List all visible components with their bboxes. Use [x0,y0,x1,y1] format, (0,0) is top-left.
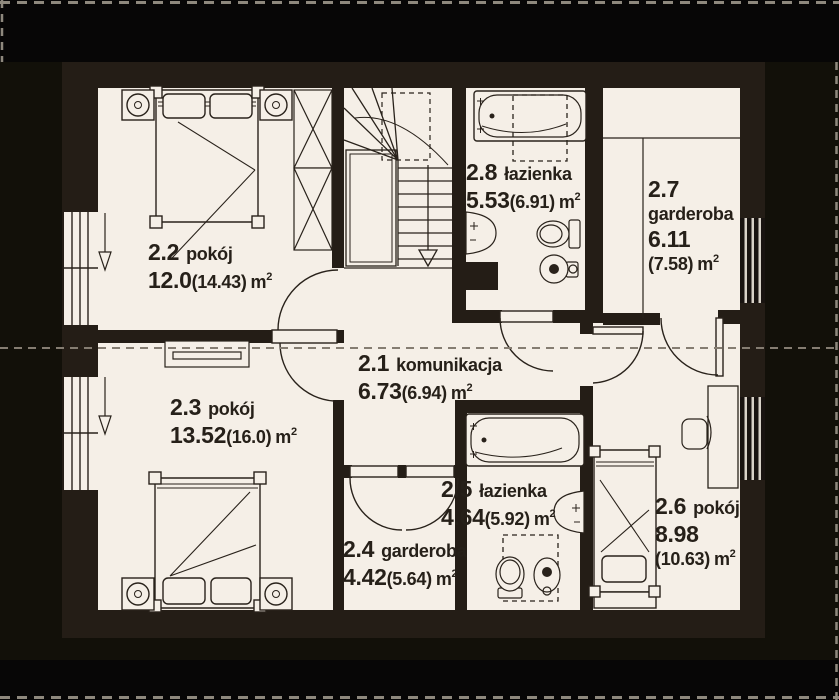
toilet-bath28 [537,220,580,248]
door-leaf-bath28 [500,311,553,322]
dresser-room23 [165,341,249,367]
toilet-bath25 [496,557,524,598]
room-label-2-3: 2.3pokój 13.52(16.0)m2 [170,395,297,451]
wall-door-post-b [398,465,406,478]
floorplan-drawing [0,0,839,700]
floorplan-page: 2.2pokój 12.0(14.43)m2 2.3pokój 13.52(16… [0,0,839,700]
wardrobe-room22 [294,90,332,250]
single-bed-room26 [589,446,660,608]
wall-exterior-top [62,62,765,88]
wall-room22-stairs [332,88,344,268]
window-left-upper [64,212,98,325]
window-right-garderoba [740,218,765,303]
room-label-2-8: 2.8łazienka 5.53(6.91)m2 [466,160,580,216]
window-right-room26 [740,397,765,480]
room-label-2-4: 2.4garderoba 4.42(5.64)m2 [343,537,466,593]
wall-room26-west-top [580,313,593,334]
room-label-2-5: 2.5łazienka 4.64(5.92)m2 [441,477,555,533]
wall-exterior-bottom [62,610,765,638]
door-leaf-room22 [272,330,337,343]
room-label-2-2: 2.2pokój 12.0(14.43)m2 [148,240,272,296]
bathtub-bath25 [466,414,584,466]
door-leaf-garderoba24 [350,466,398,477]
wall-duct-block [452,262,498,290]
room-label-2-6: 2.6pokój 8.98 (10.63)m2 [655,494,740,572]
double-bed-room23 [149,472,266,612]
window-left-lower [64,377,98,490]
wall-hall-sw-left [333,465,352,478]
wall-bath28-garderoba27 [585,88,603,313]
wall-garderoba27-south-left [603,313,660,325]
room-label-2-1: 2.1komunikacja 6.73(6.94)m2 [358,351,502,407]
wall-exterior-left [62,88,98,610]
desk-room26 [708,386,738,488]
wall-door-post-a [337,330,344,343]
wall-bath28-south-left [452,310,502,323]
bathtub-bath28 [474,91,586,141]
room-label-2-7: 2.7 garderoba 6.11 (7.58)m2 [648,177,733,278]
door-leaf-room26 [593,327,643,334]
